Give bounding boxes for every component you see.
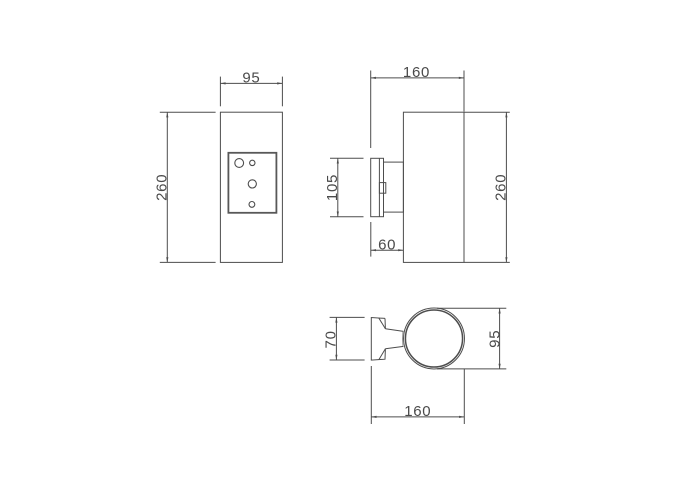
- svg-text:95: 95: [242, 70, 260, 87]
- svg-text:60: 60: [378, 237, 396, 254]
- svg-text:105: 105: [324, 174, 341, 201]
- svg-text:70: 70: [323, 330, 340, 348]
- svg-text:260: 260: [493, 174, 510, 201]
- svg-text:260: 260: [154, 174, 171, 201]
- svg-text:95: 95: [486, 330, 503, 348]
- svg-text:160: 160: [404, 403, 431, 420]
- svg-text:160: 160: [403, 64, 430, 81]
